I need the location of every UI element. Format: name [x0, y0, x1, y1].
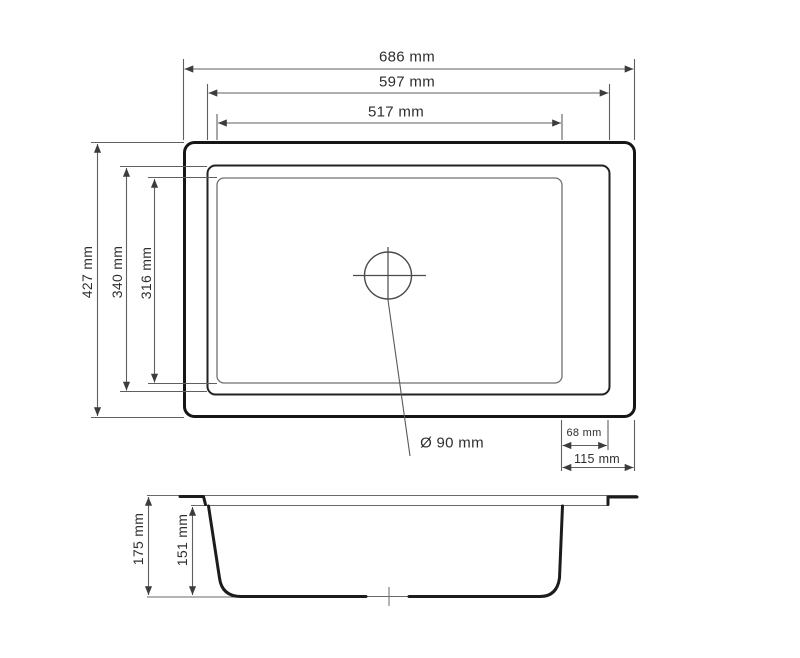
dim-label-overall-width: 686 mm	[379, 49, 435, 66]
drawing-linework	[0, 0, 800, 658]
drain-leader-line	[388, 300, 410, 456]
sink-technical-drawing: 686 mm 597 mm 517 mm 427 mm 340 mm 316 m…	[0, 0, 800, 658]
dim-label-bowl-width: 517 mm	[368, 104, 424, 121]
section-profile-left	[180, 497, 366, 597]
dim-label-bowl-to-rim-offset: 68 mm	[566, 427, 601, 439]
top-view	[185, 143, 635, 457]
dim-label-bowl-to-edge-offset: 115 mm	[574, 452, 620, 466]
section-view	[147, 496, 637, 607]
dim-label-drain-diameter: Ø 90 mm	[420, 435, 484, 452]
dim-label-bowl-inner-depth: 151 mm	[174, 514, 190, 566]
sink-bowl-outline	[217, 178, 562, 383]
dim-label-overall-depth: 427 mm	[79, 246, 95, 298]
sink-outer-outline	[185, 143, 635, 417]
dim-label-overall-height: 175 mm	[130, 513, 146, 565]
dim-label-rim-width: 597 mm	[379, 74, 435, 91]
top-view-dimensions	[91, 59, 635, 471]
section-profile-right	[409, 497, 637, 597]
sink-rim-outline	[208, 166, 610, 395]
dim-label-rim-depth: 340 mm	[109, 246, 125, 298]
dim-label-bowl-depth: 316 mm	[138, 247, 154, 299]
